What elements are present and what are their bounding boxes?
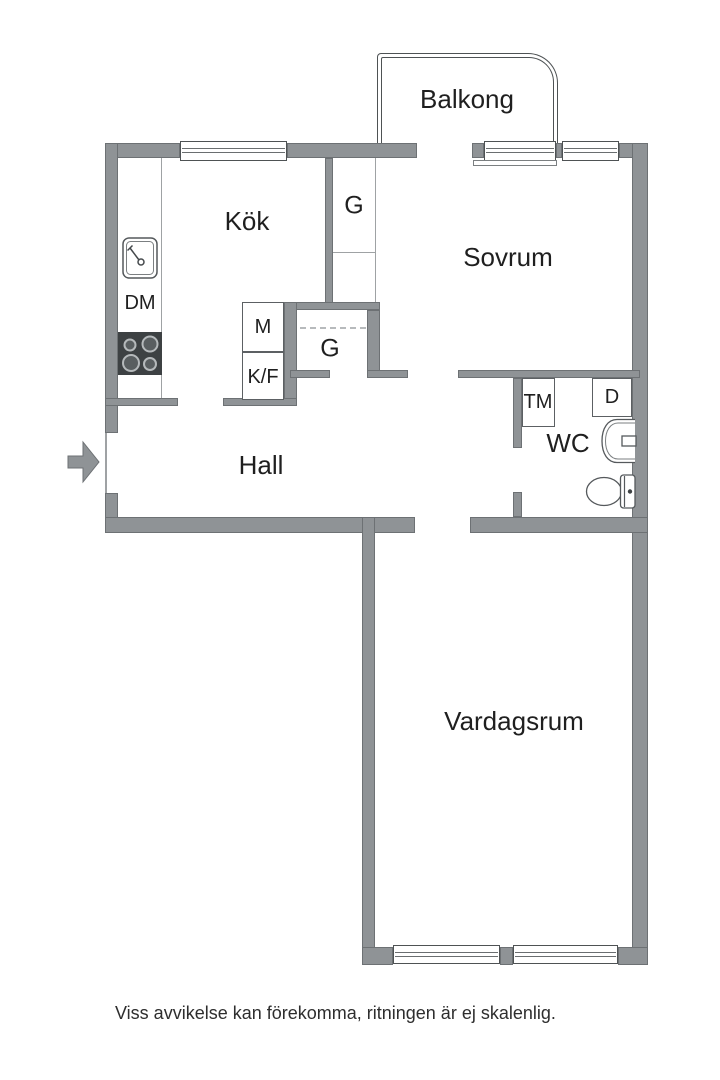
- bedroom-south-wall: [458, 370, 640, 378]
- balcony-door-sill: [473, 160, 557, 166]
- wc-west-wall-stub: [513, 492, 522, 517]
- kitchen-window: [180, 141, 287, 161]
- closet-bottom-stub: [290, 370, 330, 378]
- disclaimer-text: Viss avvikelse kan förekomma, ritningen …: [115, 1003, 556, 1024]
- livingroom-left-wall: [362, 517, 375, 965]
- closet-label-g-lower: G: [320, 337, 339, 362]
- livingroom-window-right: [513, 945, 618, 964]
- left-wall-upper: [105, 143, 118, 433]
- floor-plan: Balkong Kök Sovrum Hall WC Vardagsrum G …: [0, 0, 720, 1080]
- closet-dashed-line: [300, 327, 366, 329]
- wc-bottom-wall: [470, 517, 648, 533]
- closet-partition-line: [375, 158, 376, 302]
- bottom-wall-pier: [500, 947, 513, 965]
- top-wall-pier: [472, 143, 484, 158]
- bottom-wall-segment: [618, 947, 648, 965]
- room-label-wc: WC: [546, 430, 589, 456]
- room-label-sovrum: Sovrum: [463, 244, 553, 270]
- kitchen-sink-icon: [122, 237, 158, 279]
- kitchen-south-wall: [105, 398, 178, 406]
- toilet-icon: [585, 474, 636, 510]
- kitchen-east-wall: [325, 158, 333, 303]
- appliance-label-kf: K/F: [247, 367, 278, 387]
- wc-sink-icon: [600, 418, 636, 464]
- bedroom-window-left: [484, 141, 556, 161]
- pantry-east-wall: [284, 302, 297, 406]
- appliance-label-dm: DM: [124, 293, 155, 313]
- closet-label-g-upper: G: [344, 194, 363, 219]
- closet-east-wall: [367, 310, 380, 378]
- appliance-label-d: D: [605, 387, 619, 407]
- room-label-vardagsrum: Vardagsrum: [444, 708, 584, 734]
- right-wall: [632, 143, 648, 965]
- room-label-balkong: Balkong: [420, 86, 514, 112]
- closet-shelf-line: [333, 252, 375, 253]
- appliance-label-m: M: [255, 317, 272, 337]
- closet-top-wall: [284, 302, 380, 310]
- entry-arrow-icon: [68, 441, 100, 483]
- livingroom-window-left: [393, 945, 500, 964]
- closet-foot-wall: [367, 370, 408, 378]
- room-label-kok: Kök: [225, 208, 270, 234]
- bottom-wall-segment: [362, 947, 393, 965]
- appliance-label-tm: TM: [524, 392, 553, 412]
- bedroom-window-right: [562, 141, 619, 161]
- top-wall-segment: [287, 143, 417, 158]
- entry-door-line: [105, 433, 107, 493]
- stove-icon: [118, 332, 162, 375]
- room-label-hall: Hall: [239, 452, 284, 478]
- wc-west-wall: [513, 378, 522, 448]
